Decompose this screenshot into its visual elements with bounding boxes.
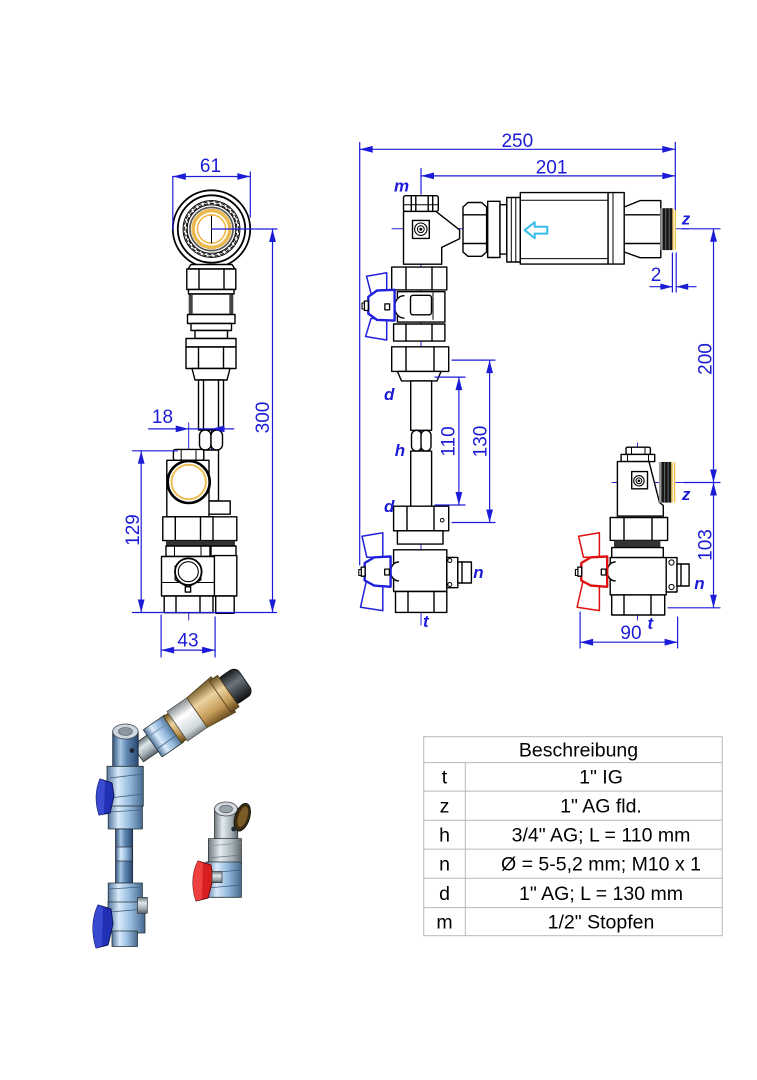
svg-text:m: m [394,177,409,196]
svg-text:250: 250 [501,131,533,152]
svg-text:1" AG fld.: 1" AG fld. [560,796,642,818]
svg-text:130: 130 [471,426,492,458]
svg-text:2: 2 [651,265,662,286]
svg-text:18: 18 [152,407,173,428]
svg-text:h: h [439,825,450,847]
svg-text:110: 110 [438,426,459,456]
svg-text:t: t [423,612,430,631]
svg-text:Beschreibung: Beschreibung [519,740,638,762]
svg-text:Ø = 5-5,2 mm; M10 x 1: Ø = 5-5,2 mm; M10 x 1 [501,854,701,876]
svg-text:t: t [648,614,655,633]
svg-text:z: z [681,210,691,229]
svg-text:n: n [473,563,483,582]
svg-text:d: d [439,883,450,905]
svg-text:d: d [384,497,395,516]
svg-text:h: h [395,441,405,460]
svg-text:n: n [694,574,704,593]
svg-text:1/2" Stopfen: 1/2" Stopfen [548,912,655,934]
svg-text:1" AG; L = 130 mm: 1" AG; L = 130 mm [519,883,683,905]
svg-text:43: 43 [177,631,198,652]
svg-text:201: 201 [536,157,568,178]
svg-text:d: d [384,385,395,404]
svg-text:90: 90 [620,623,641,644]
svg-text:200: 200 [696,343,717,375]
svg-text:1" IG: 1" IG [579,767,623,789]
svg-text:300: 300 [253,402,274,434]
svg-text:61: 61 [200,156,221,177]
svg-text:129: 129 [123,514,144,546]
svg-text:t: t [442,767,448,789]
svg-text:m: m [436,912,452,934]
svg-text:z: z [440,796,450,818]
svg-text:3/4" AG; L = 110 mm: 3/4" AG; L = 110 mm [512,825,691,847]
svg-text:103: 103 [696,529,717,561]
svg-text:z: z [681,485,691,504]
svg-text:n: n [439,854,450,876]
